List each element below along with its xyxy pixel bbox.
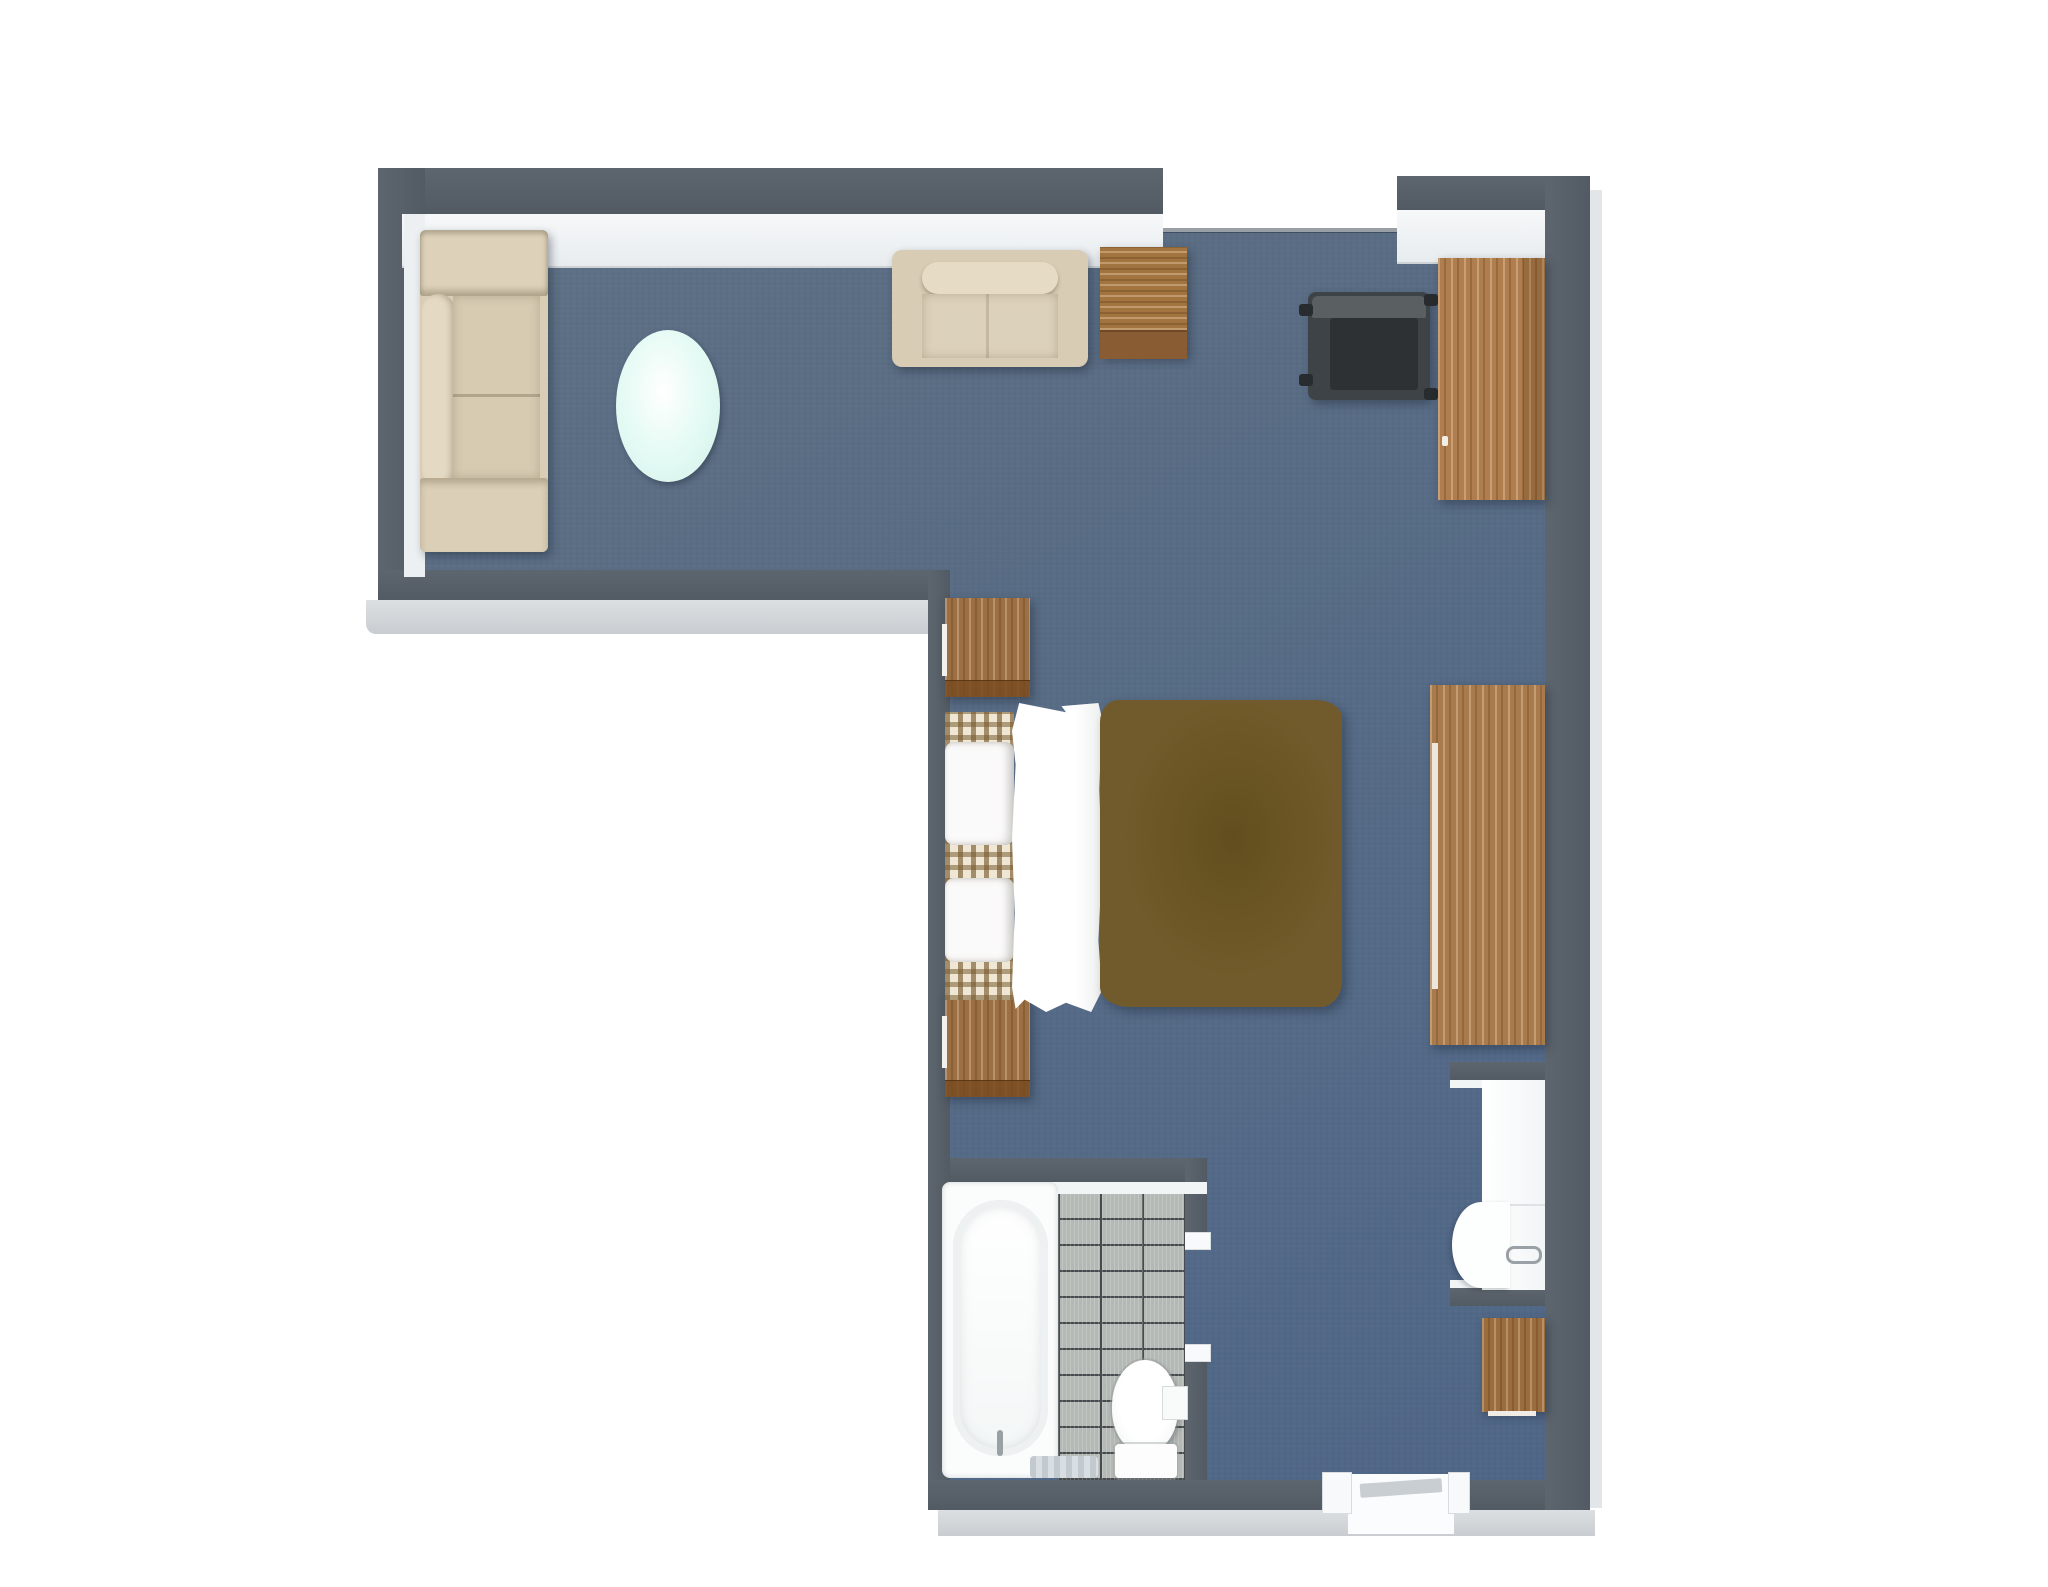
side-table-top (1100, 247, 1187, 330)
dark-lounge-chair[interactable] (1308, 292, 1430, 400)
small-cabinet[interactable] (1482, 1318, 1545, 1412)
lounge-chair-backrest (1312, 296, 1426, 318)
nightstand-front (945, 680, 1030, 697)
bed-pillow (945, 742, 1014, 845)
sofa-armrest (420, 478, 548, 552)
wall-outer-face (1590, 190, 1602, 1508)
nightstand-edge-highlight (942, 1016, 947, 1068)
lounge-chair-foot (1299, 374, 1313, 386)
wall-right (1545, 176, 1590, 1510)
wall-bathroom-right-upper (1185, 1158, 1207, 1234)
sofa-chaise-cushion (420, 230, 548, 296)
nightstand-top[interactable] (945, 598, 1030, 697)
armchair[interactable] (892, 250, 1088, 367)
wall-outer-face (938, 1510, 1595, 1536)
wall-top-left-segment (378, 168, 1163, 214)
sofa-backrest (422, 294, 455, 486)
sofa-seat-cushions (453, 296, 540, 478)
wardrobe-handle (1442, 436, 1448, 446)
bathroom-door-jamb-bottom (1183, 1344, 1211, 1362)
nightstand-edge-highlight (942, 624, 947, 676)
bathtub-faucet-icon (997, 1430, 1003, 1456)
window-gap-floor-edge (1163, 228, 1397, 233)
toilet-roll-holder (1162, 1386, 1188, 1420)
wall-bottom (928, 1480, 1590, 1510)
wall-bathroom-right-lower (1185, 1360, 1207, 1480)
bath-mat (1030, 1456, 1098, 1478)
lounge-chair-seat (1330, 318, 1418, 390)
vanity-nook-wall-top (1450, 1062, 1545, 1080)
vanity-nook-wall-bottom (1450, 1288, 1545, 1306)
side-table-front (1100, 330, 1187, 359)
lounge-chair-foot (1299, 304, 1313, 316)
floor-plan-canvas (0, 0, 2048, 1587)
lounge-chair-foot (1424, 294, 1438, 306)
nightstand-front (945, 1080, 1030, 1097)
entry-door-jamb-right (1448, 1472, 1470, 1514)
sofa[interactable] (420, 230, 548, 552)
bed-pillow (945, 878, 1014, 962)
window-sill-top-right (1397, 210, 1545, 264)
bed-folded-sheet (1012, 703, 1102, 1012)
vanity-faucet-icon (1506, 1246, 1542, 1264)
wall-outer-face (366, 600, 950, 634)
lounge-chair-foot (1424, 388, 1438, 400)
oval-coffee-table[interactable] (616, 330, 720, 482)
bathtub[interactable] (942, 1182, 1058, 1478)
side-table[interactable] (1100, 247, 1187, 357)
vanity-sink-basin (1452, 1202, 1510, 1288)
bathroom-door-jamb-top (1183, 1232, 1211, 1250)
wardrobe[interactable] (1438, 258, 1545, 500)
toilet-tank (1115, 1444, 1177, 1478)
long-dresser[interactable] (1430, 685, 1545, 1045)
wall-living-bottom (378, 570, 950, 600)
bathtub-basin (953, 1200, 1048, 1456)
armchair-backrest (922, 262, 1058, 294)
wall-bathroom-top (950, 1158, 1207, 1182)
bed-pillows-plaid[interactable] (945, 712, 1014, 1000)
bed-duvet[interactable] (1100, 700, 1342, 1007)
entry-door-jamb-left (1322, 1472, 1352, 1514)
armchair-seat (922, 294, 1058, 358)
